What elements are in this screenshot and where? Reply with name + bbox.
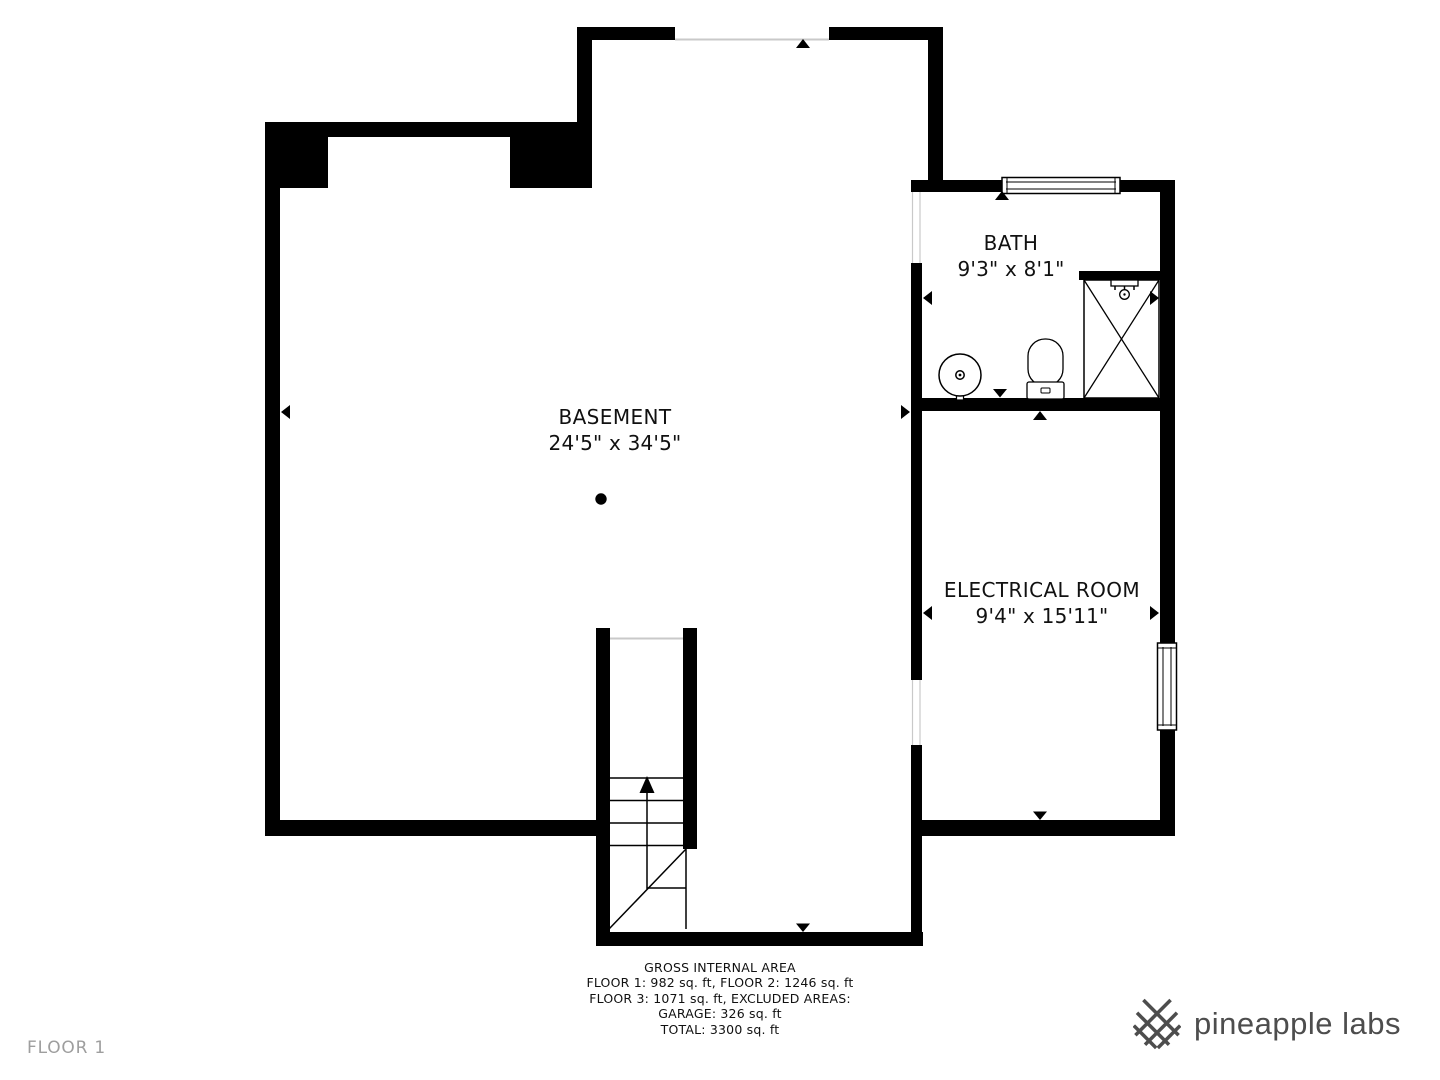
shower-fixture	[1079, 271, 1160, 398]
stairs	[609, 776, 686, 929]
electrical-window	[1158, 643, 1177, 730]
electrical-room-label: ELECTRICAL ROOM 9'4" x 15'11"	[944, 577, 1140, 629]
marker-down	[993, 389, 1007, 398]
wall	[265, 820, 597, 836]
bath-fixtures	[939, 271, 1160, 400]
brand-logo-text: pineapple labs	[1194, 1006, 1401, 1042]
room-name: ELECTRICAL ROOM	[944, 577, 1140, 603]
wall	[510, 137, 592, 188]
room-name: BASEMENT	[549, 404, 682, 430]
wall	[265, 122, 280, 836]
floor-number-label: FLOOR 1	[27, 1038, 106, 1058]
marker-right	[901, 405, 910, 419]
sink-fixture	[939, 354, 981, 400]
room-name: BATH	[957, 230, 1064, 256]
wall	[596, 932, 923, 946]
wall	[596, 628, 610, 946]
wall	[928, 27, 943, 180]
bath-label: BATH 9'3" x 8'1"	[957, 230, 1064, 282]
wall	[829, 27, 943, 40]
marker-right	[1150, 291, 1159, 305]
column-dot	[595, 493, 606, 504]
basement-label: BASEMENT 24'5" x 34'5"	[549, 404, 682, 456]
room-dimensions: 9'3" x 8'1"	[957, 256, 1064, 282]
dimension-markers	[281, 39, 1159, 932]
wall	[911, 745, 922, 946]
area-summary-line: FLOOR 1: 982 sq. ft, FLOOR 2: 1246 sq. f…	[586, 975, 853, 990]
room-dimensions: 9'4" x 15'11"	[944, 603, 1140, 629]
marker-down	[1033, 812, 1047, 821]
area-summary: GROSS INTERNAL AREA FLOOR 1: 982 sq. ft,…	[586, 960, 853, 1037]
shower-head-icon	[1111, 280, 1138, 299]
wall-openings	[610, 40, 920, 746]
marker-left	[923, 606, 932, 620]
area-summary-title: GROSS INTERNAL AREA	[586, 960, 853, 975]
wall	[911, 820, 1175, 836]
pineapple-lattice-icon	[1133, 994, 1181, 1054]
wall	[1160, 180, 1175, 645]
marker-right	[1150, 606, 1159, 620]
brand-logo: pineapple labs	[1133, 994, 1401, 1054]
wall	[265, 122, 592, 137]
wall	[911, 263, 922, 680]
toilet-fixture	[1027, 339, 1064, 399]
area-summary-line: GARAGE: 326 sq. ft	[586, 1006, 853, 1021]
room-dimensions: 24'5" x 34'5"	[549, 430, 682, 456]
walls	[265, 27, 1175, 946]
marker-down	[796, 924, 810, 933]
wall	[1160, 728, 1175, 836]
area-summary-line: TOTAL: 3300 sq. ft	[586, 1022, 853, 1037]
wall	[911, 398, 1175, 411]
floor-plan-drawing	[0, 0, 1440, 1080]
marker-up	[1033, 411, 1047, 420]
bath-window	[1002, 178, 1120, 194]
marker-left	[923, 291, 932, 305]
area-summary-line: FLOOR 3: 1071 sq. ft, EXCLUDED AREAS:	[586, 991, 853, 1006]
floor-plan-page: BASEMENT 24'5" x 34'5" BATH 9'3" x 8'1" …	[0, 0, 1440, 1080]
marker-left	[281, 405, 290, 419]
wall	[683, 628, 697, 849]
